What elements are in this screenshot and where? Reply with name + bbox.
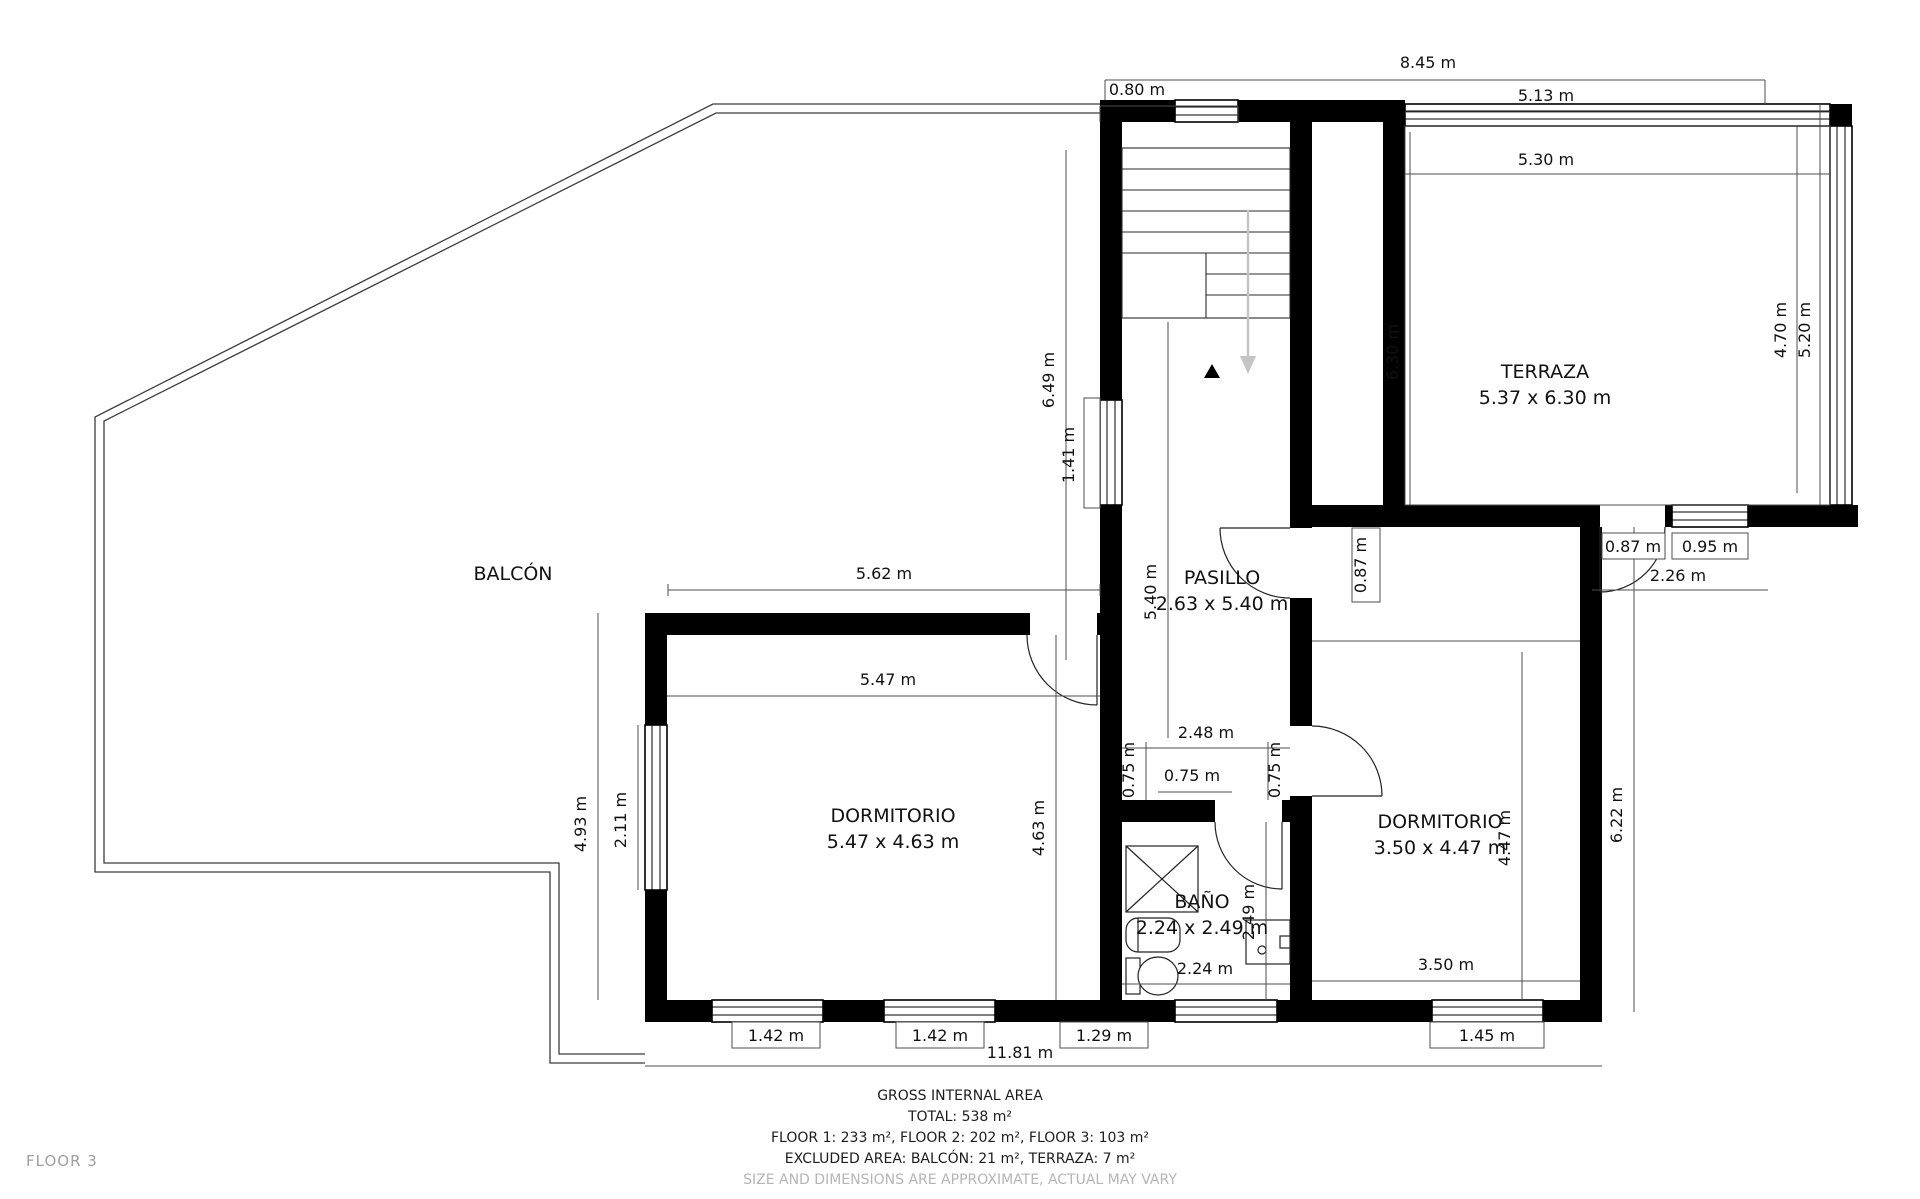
dim-label: 2.48 m bbox=[1178, 723, 1234, 742]
room-label-dormitorio-left: DORMITORIO bbox=[830, 805, 955, 827]
dim-label: 0.75 m bbox=[1265, 742, 1284, 798]
room-label-terraza-size: 5.37 x 6.30 m bbox=[1479, 387, 1611, 409]
room-label-balcon: BALCÓN bbox=[473, 561, 552, 585]
floor-areas: FLOOR 1: 233 m², FLOOR 2: 202 m², FLOOR … bbox=[0, 1128, 1920, 1149]
window bbox=[1672, 505, 1748, 527]
room-label-bano-size: 2.24 x 2.49 m bbox=[1136, 917, 1268, 939]
dim-label: 5.62 m bbox=[856, 564, 912, 583]
dim-label: 1.29 m bbox=[1076, 1026, 1132, 1045]
walls bbox=[645, 100, 1858, 1022]
dim-label: 0.95 m bbox=[1682, 537, 1738, 556]
gross-internal-area-title: GROSS INTERNAL AREA bbox=[0, 1086, 1920, 1107]
dim-label: 5.20 m bbox=[1795, 302, 1814, 358]
dim-label: 5.47 m bbox=[860, 670, 916, 689]
floor-plan-page: 8.45 m0.80 m5.13 m5.30 m5.62 m5.47 m2.48… bbox=[0, 0, 1920, 1199]
stairs-down-arrow-icon bbox=[1240, 210, 1256, 374]
door bbox=[1027, 635, 1097, 705]
doors bbox=[1027, 527, 1665, 889]
room-label-pasillo: PASILLO bbox=[1184, 567, 1260, 589]
room-label-dormitorio-right: DORMITORIO bbox=[1377, 811, 1502, 833]
dim-label: 1.42 m bbox=[912, 1026, 968, 1045]
dim-label: 4.63 m bbox=[1029, 800, 1048, 856]
window bbox=[1100, 400, 1122, 505]
dim-label: 4.70 m bbox=[1771, 302, 1790, 358]
toilet bbox=[1126, 957, 1178, 995]
window bbox=[1405, 104, 1830, 126]
window bbox=[1432, 1000, 1543, 1022]
window bbox=[884, 1000, 995, 1022]
dim-label: 2.11 m bbox=[611, 792, 630, 848]
dim-label: 0.80 m bbox=[1109, 80, 1165, 99]
dim-label: 1.45 m bbox=[1459, 1026, 1515, 1045]
area-summary: GROSS INTERNAL AREA TOTAL: 538 m² FLOOR … bbox=[0, 1086, 1920, 1191]
dim-label: 11.81 m bbox=[987, 1043, 1053, 1062]
dim-label: 3.50 m bbox=[1418, 955, 1474, 974]
door bbox=[1312, 726, 1382, 796]
floor-number-label: FLOOR 3 bbox=[26, 1152, 98, 1170]
window bbox=[1830, 126, 1852, 505]
dim-label: 6.22 m bbox=[1607, 787, 1626, 843]
window bbox=[645, 725, 667, 890]
room-label-terraza: TERRAZA bbox=[1500, 361, 1589, 383]
window bbox=[1175, 100, 1238, 122]
dim-label: 0.75 m bbox=[1164, 766, 1220, 785]
room-label-dormitorio-left-size: 5.47 x 4.63 m bbox=[827, 831, 959, 853]
room-label-pasillo-size: 2.63 x 5.40 m bbox=[1156, 593, 1288, 615]
dim-label: 4.93 m bbox=[571, 796, 590, 852]
dim-label: 0.87 m bbox=[1605, 537, 1661, 556]
dim-label: 0.75 m bbox=[1119, 742, 1138, 798]
stairs-direction-tick bbox=[1204, 364, 1220, 378]
excluded-areas: EXCLUDED AREA: BALCÓN: 21 m², TERRAZA: 7… bbox=[0, 1149, 1920, 1170]
room-label-bano: BAÑO bbox=[1174, 890, 1229, 913]
door bbox=[1215, 822, 1282, 889]
staircase bbox=[1122, 148, 1290, 378]
dim-label: 5.13 m bbox=[1518, 86, 1574, 105]
dim-label: 6.49 m bbox=[1039, 352, 1058, 408]
dim-label: 8.45 m bbox=[1400, 53, 1456, 72]
dim-label: 5.30 m bbox=[1518, 150, 1574, 169]
window bbox=[1175, 1000, 1277, 1022]
dim-label: 1.41 m bbox=[1059, 427, 1078, 483]
window bbox=[712, 1000, 823, 1022]
dim-label: 1.42 m bbox=[748, 1026, 804, 1045]
dim-label: 2.24 m bbox=[1177, 959, 1233, 978]
disclaimer: SIZE AND DIMENSIONS ARE APPROXIMATE, ACT… bbox=[0, 1170, 1920, 1191]
dim-label: 0.87 m bbox=[1351, 537, 1370, 593]
dim-label: 2.26 m bbox=[1650, 566, 1706, 585]
floor-plan-drawing: 8.45 m0.80 m5.13 m5.30 m5.62 m5.47 m2.48… bbox=[0, 0, 1920, 1199]
total-area: TOTAL: 538 m² bbox=[0, 1107, 1920, 1128]
dim-label: 6.30 m bbox=[1383, 324, 1402, 380]
room-label-dormitorio-right-size: 3.50 x 4.47 m bbox=[1374, 837, 1506, 859]
